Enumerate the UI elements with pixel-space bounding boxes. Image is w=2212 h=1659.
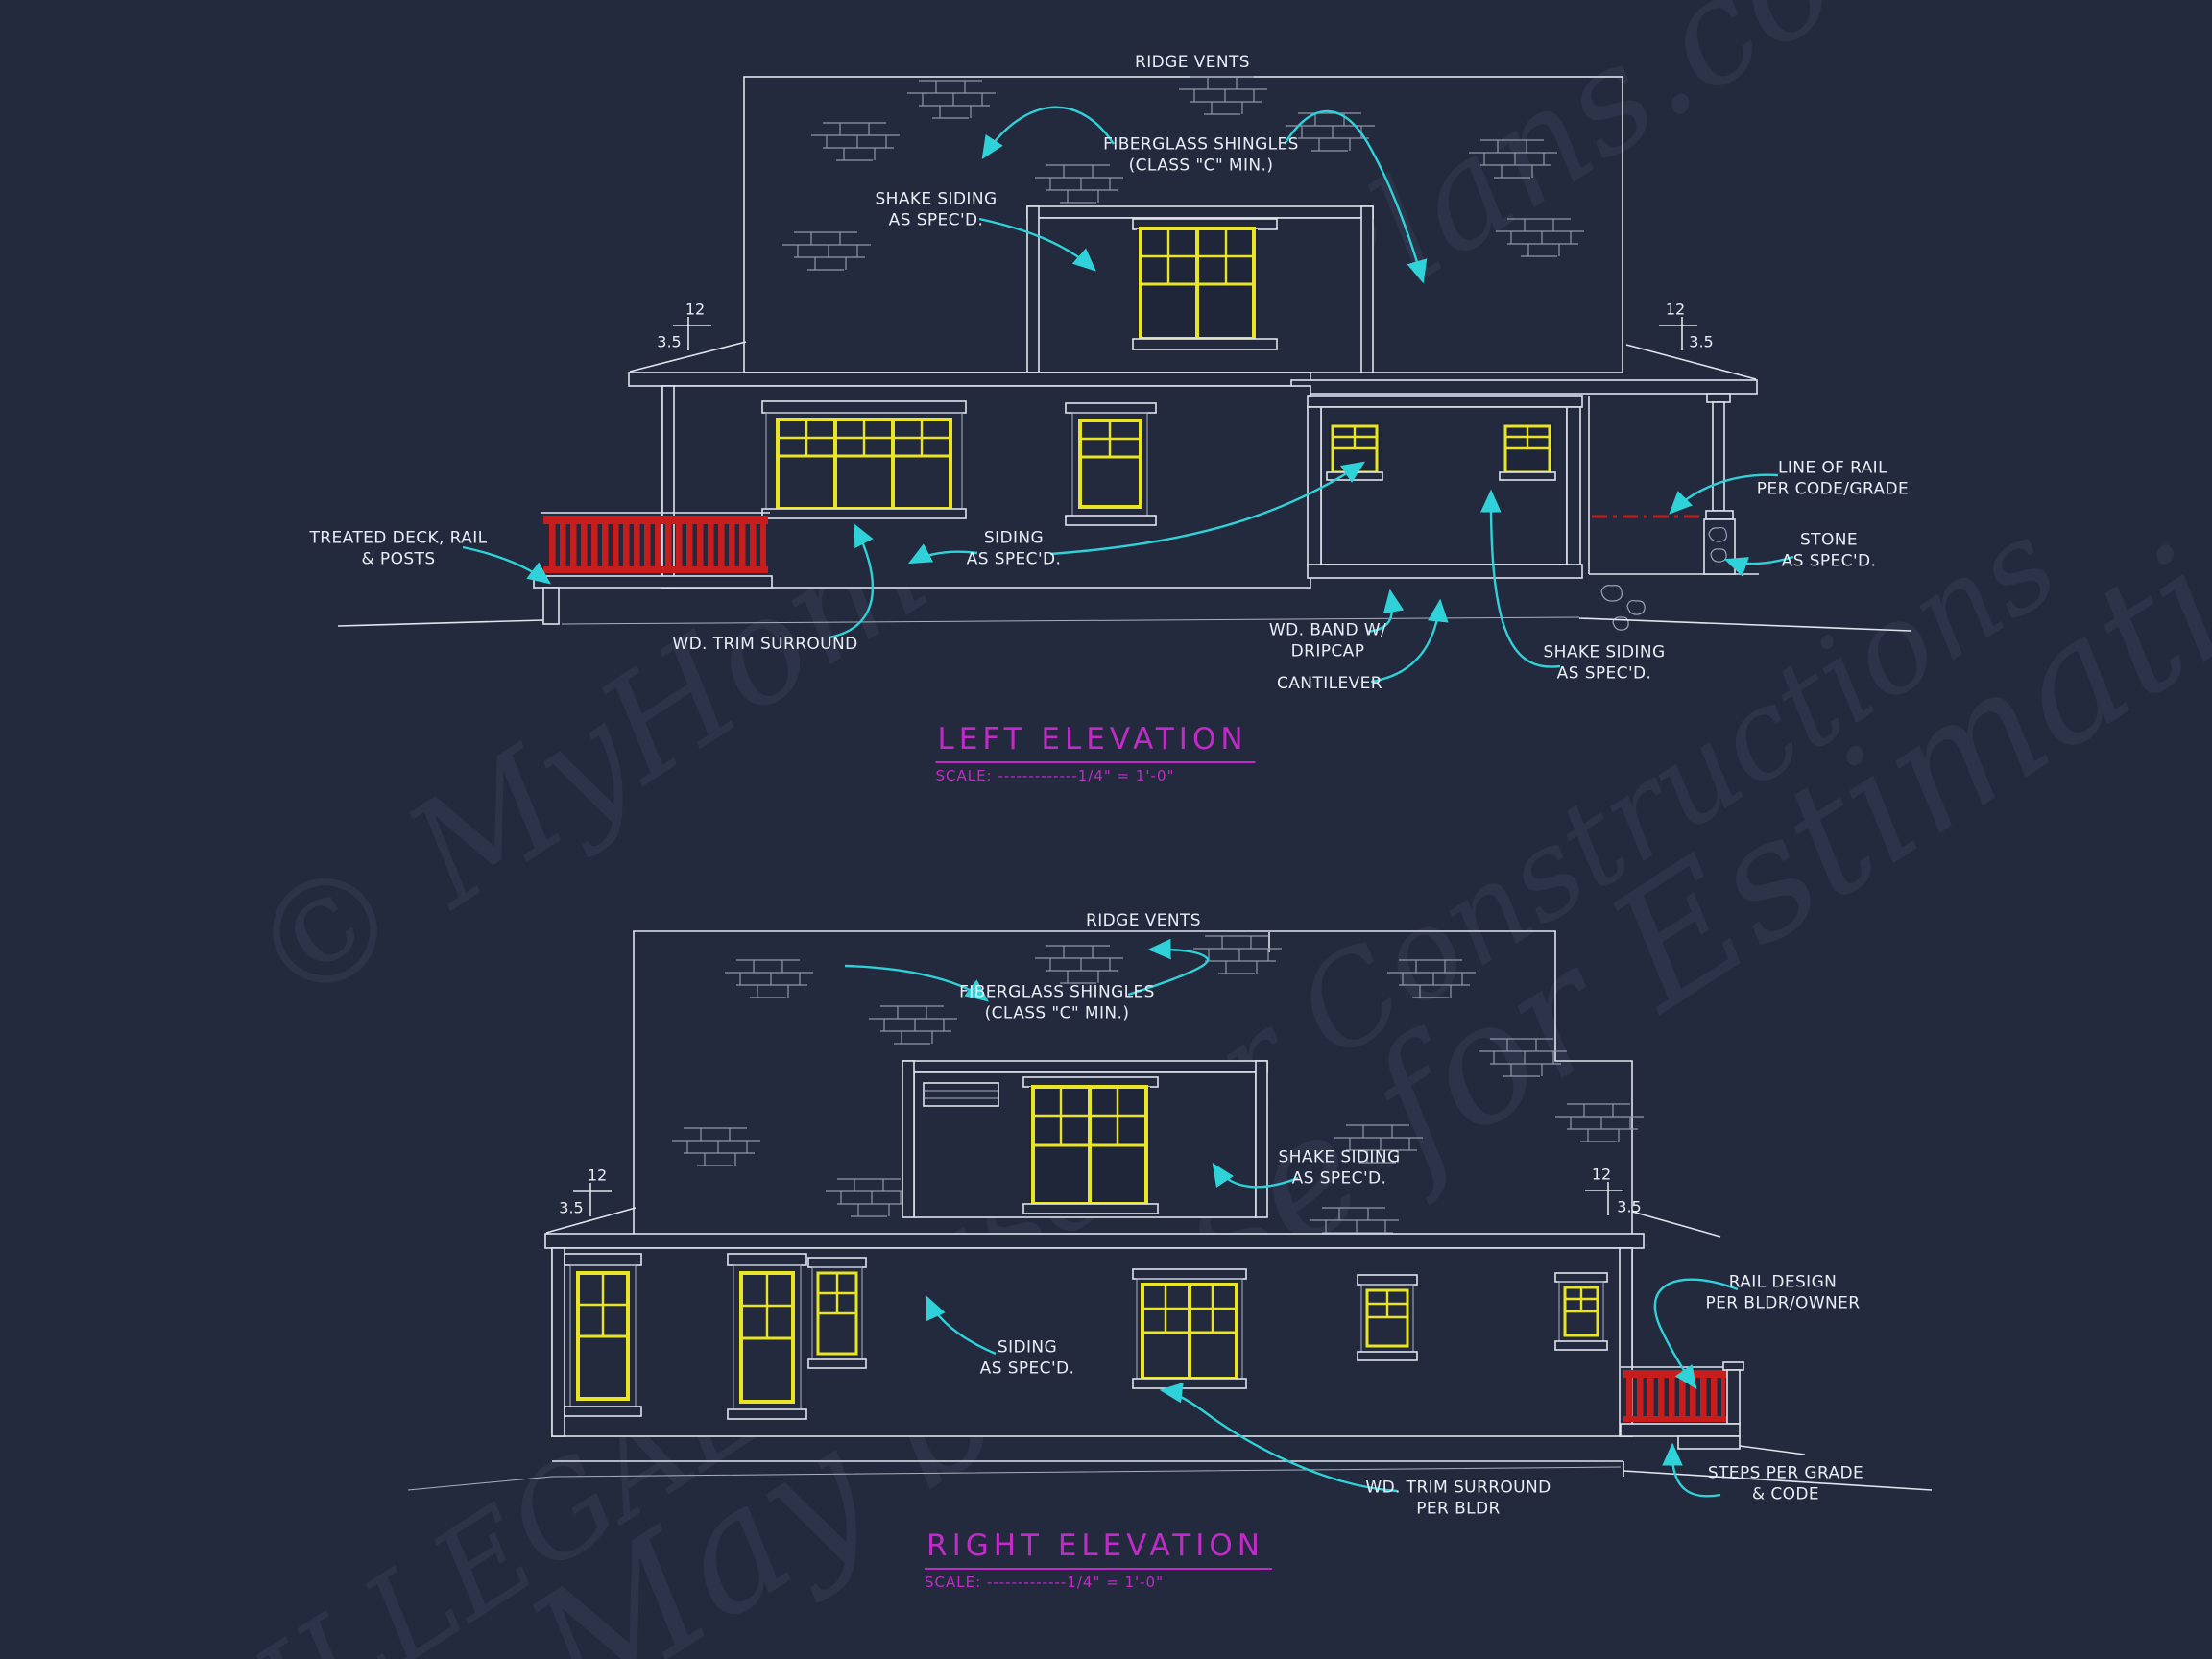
re-slope-left-rise: 12 [588,1166,607,1185]
le-label-wd-band: WD. BAND W/ DRIPCAP [1269,620,1386,662]
le-slope-right-rise: 12 [1666,301,1685,319]
le-label-siding: SIDING AS SPEC'D. [967,528,1062,570]
le-label-shake-siding-lower: SHAKE SIDING AS SPEC'D. [1543,642,1665,685]
le-label-fiberglass-shingles: FIBERGLASS SHINGLES (CLASS "C" MIN.) [1103,134,1299,177]
left-elevation-scale: SCALE: -------------1/4" = 1'-0" [935,767,1255,784]
elevation-drawings [0,0,2212,1659]
re-label-steps: STEPS PER GRADE & CODE [1708,1463,1863,1505]
re-label-siding: SIDING AS SPEC'D. [980,1337,1075,1380]
le-label-cantilever: CANTILEVER [1277,674,1382,695]
re-label-wd-trim-surround: WD. TRIM SURROUND PER BLDR [1365,1478,1551,1520]
le-slope-right-run: 3.5 [1689,333,1713,351]
re-label-fiberglass-shingles: FIBERGLASS SHINGLES (CLASS "C" MIN.) [959,982,1155,1024]
re-slope-right-run: 3.5 [1617,1198,1641,1216]
left-elevation-title-block: LEFT ELEVATION SCALE: -------------1/4" … [935,722,1255,784]
right-elevation-title-block: RIGHT ELEVATION SCALE: -------------1/4"… [925,1528,1272,1591]
re-label-rail-design: RAIL DESIGN PER BLDR/OWNER [1705,1272,1860,1314]
right-elevation-title: RIGHT ELEVATION [925,1528,1272,1570]
right-elevation-drawing [408,931,1932,1496]
le-label-shake-siding-upper: SHAKE SIDING AS SPEC'D. [875,189,997,231]
right-elevation-scale: SCALE: -------------1/4" = 1'-0" [925,1574,1272,1591]
re-label-shake-siding: SHAKE SIDING AS SPEC'D. [1278,1147,1400,1190]
re-label-ridge-vents: RIDGE VENTS [1086,911,1201,932]
left-elevation-title: LEFT ELEVATION [935,722,1255,763]
le-label-stone: STONE AS SPEC'D. [1782,530,1877,572]
le-slope-left-run: 3.5 [657,333,681,351]
le-label-ridge-vents: RIDGE VENTS [1135,53,1250,74]
le-label-treated-deck: TREATED DECK, RAIL & POSTS [310,528,488,570]
le-slope-left-rise: 12 [685,301,705,319]
le-label-line-of-rail: LINE OF RAIL PER CODE/GRADE [1757,458,1909,500]
re-slope-left-run: 3.5 [559,1199,583,1217]
blueprint-page: © MyHomeFloorPlans.com ILLEGAL to use fo… [0,0,2212,1659]
le-label-wd-trim-surround: WD. TRIM SURROUND [672,635,857,656]
re-slope-right-rise: 12 [1592,1166,1611,1184]
